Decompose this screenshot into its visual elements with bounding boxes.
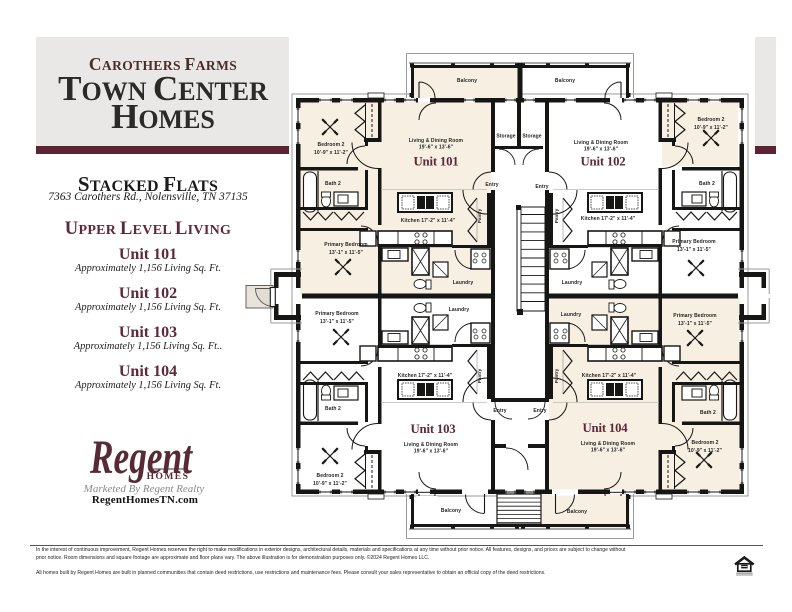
svg-text:13'-1" x 11'-5": 13'-1" x 11'-5" (329, 250, 363, 256)
svg-text:Kitchen 17'-2" x 11'-4": Kitchen 17'-2" x 11'-4" (582, 373, 637, 379)
svg-text:Primary Bedroom: Primary Bedroom (324, 242, 368, 248)
svg-text:Bath 2: Bath 2 (325, 181, 341, 187)
svg-text:Balcony: Balcony (555, 78, 575, 84)
svg-text:Kitchen 17'-2" x 11'-4": Kitchen 17'-2" x 11'-4" (401, 218, 456, 224)
svg-text:19'-6" x 13'-6": 19'-6" x 13'-6" (414, 449, 449, 455)
svg-text:Unit 101: Unit 101 (414, 155, 459, 169)
svg-text:Bath 2: Bath 2 (699, 181, 715, 187)
svg-text:10'-9" x 11'-2": 10'-9" x 11'-2" (694, 125, 728, 131)
svg-text:10'-9" x 11'-2": 10'-9" x 11'-2" (314, 150, 348, 156)
svg-text:19'-6" x 13'-6": 19'-6" x 13'-6" (584, 147, 619, 153)
svg-text:Balcony: Balcony (457, 78, 477, 84)
svg-text:Storage: Storage (496, 134, 515, 140)
svg-text:Primary Bedroom: Primary Bedroom (672, 239, 716, 245)
svg-text:Living & Dining Room: Living & Dining Room (409, 138, 464, 144)
svg-text:Unit 104: Unit 104 (583, 421, 629, 435)
svg-text:Primary Bedroom: Primary Bedroom (673, 313, 717, 319)
svg-text:Bath 2: Bath 2 (700, 410, 716, 416)
svg-text:13'-1" x 11'-5": 13'-1" x 11'-5" (677, 247, 711, 253)
svg-text:Bedroom 2: Bedroom 2 (691, 440, 718, 446)
svg-text:Entry: Entry (485, 182, 498, 188)
svg-text:Entry: Entry (493, 408, 506, 414)
svg-text:Living & Dining Room: Living & Dining Room (404, 442, 459, 448)
svg-text:13'-1" x 11'-5": 13'-1" x 11'-5" (678, 321, 712, 327)
svg-text:Kitchen 17'-2" x 11'-4": Kitchen 17'-2" x 11'-4" (398, 373, 453, 379)
svg-text:19'-6" x 13'-6": 19'-6" x 13'-6" (591, 448, 626, 454)
svg-text:Unit 102: Unit 102 (581, 155, 626, 169)
svg-text:Living & Dining Room: Living & Dining Room (574, 140, 629, 146)
svg-text:Bath 2: Bath 2 (325, 406, 341, 412)
svg-text:Living & Dining Room: Living & Dining Room (581, 441, 636, 447)
svg-text:Pantry: Pantry (477, 208, 482, 223)
svg-text:13'-1" x 11'-5": 13'-1" x 11'-5" (320, 319, 354, 325)
svg-text:Balcony: Balcony (441, 508, 461, 514)
svg-text:Kitchen 17'-2" x 11'-4": Kitchen 17'-2" x 11'-4" (581, 216, 636, 222)
svg-text:Unit 103: Unit 103 (411, 422, 456, 436)
svg-text:Pantry: Pantry (477, 368, 482, 383)
svg-text:10'-9" x 11'-2": 10'-9" x 11'-2" (313, 481, 347, 487)
svg-text:Entry: Entry (533, 408, 546, 414)
svg-text:Primary Bedroom: Primary Bedroom (315, 311, 359, 317)
svg-text:Storage: Storage (522, 134, 541, 140)
svg-text:Laundry: Laundry (561, 312, 582, 318)
svg-text:19'-6" x 13'-6": 19'-6" x 13'-6" (419, 145, 454, 151)
svg-text:Laundry: Laundry (562, 280, 583, 286)
svg-text:Pantry: Pantry (554, 368, 559, 383)
svg-text:10'-9" x 11'-2": 10'-9" x 11'-2" (688, 448, 722, 454)
svg-text:Bedroom 2: Bedroom 2 (317, 142, 344, 148)
svg-text:Laundry: Laundry (453, 280, 474, 286)
svg-text:Balcony: Balcony (567, 509, 587, 515)
svg-text:Laundry: Laundry (449, 307, 470, 313)
svg-text:Pantry: Pantry (554, 208, 559, 223)
svg-text:Entry: Entry (535, 184, 548, 190)
svg-text:Bedroom 2: Bedroom 2 (316, 473, 343, 479)
svg-text:Bedroom 2: Bedroom 2 (697, 117, 724, 123)
